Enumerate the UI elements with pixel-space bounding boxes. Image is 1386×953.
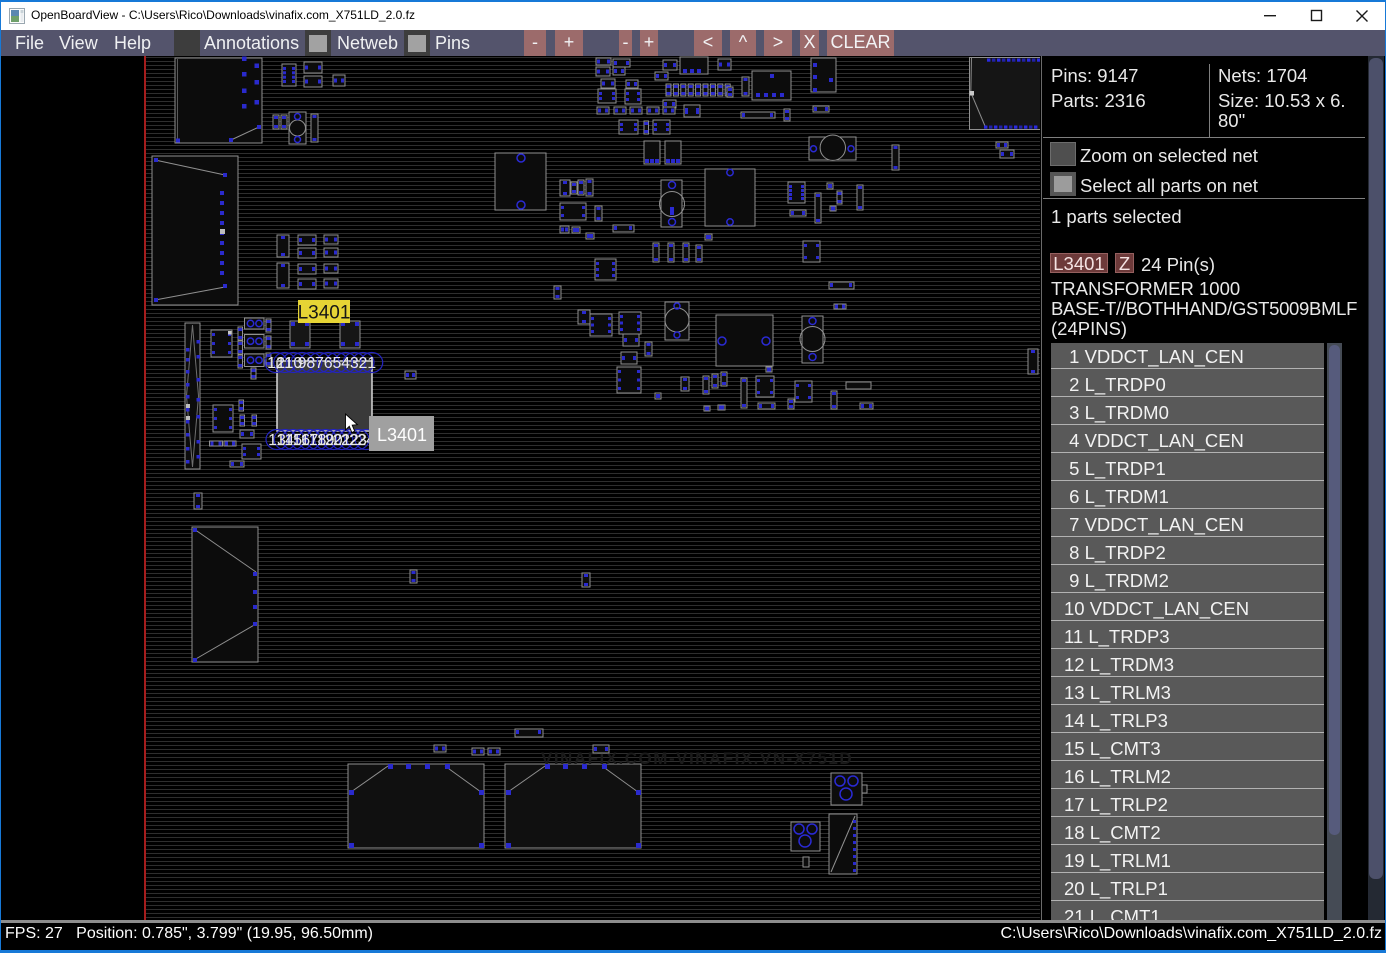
svg-text:4: 4 xyxy=(341,355,350,372)
svg-text:7: 7 xyxy=(315,355,324,372)
svg-text:9: 9 xyxy=(298,355,307,372)
svg-text:L3401: L3401 xyxy=(298,303,351,324)
svg-text:5: 5 xyxy=(332,355,341,372)
svg-text:L3401: L3401 xyxy=(377,425,427,445)
svg-text:6: 6 xyxy=(324,355,333,372)
svg-text:2: 2 xyxy=(359,355,368,372)
svg-text:8: 8 xyxy=(306,355,315,372)
svg-text:1: 1 xyxy=(367,355,376,372)
svg-text:VINAFIX.COM-VINAFIX.VN-X751D: VINAFIX.COM-VINAFIX.VN-X751D xyxy=(541,749,853,768)
svg-text:3: 3 xyxy=(350,355,359,372)
